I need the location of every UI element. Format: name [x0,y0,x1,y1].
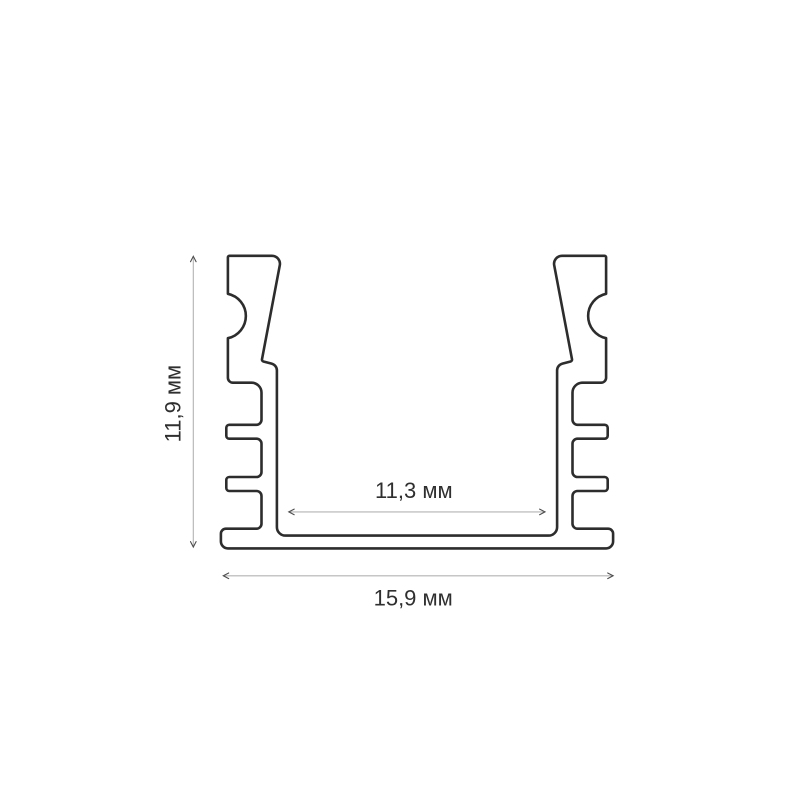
svg-text:11,9 мм: 11,9 мм [161,365,186,443]
svg-text:11,3 мм: 11,3 мм [375,478,453,503]
svg-text:15,9 мм: 15,9 мм [374,585,453,610]
